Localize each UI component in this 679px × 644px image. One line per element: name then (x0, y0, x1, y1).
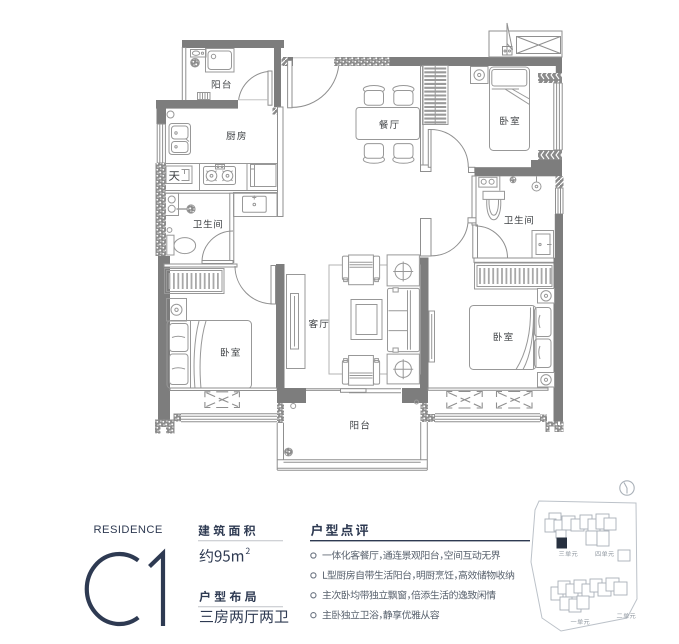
svg-text:RESIDENCE: RESIDENCE (94, 524, 163, 536)
